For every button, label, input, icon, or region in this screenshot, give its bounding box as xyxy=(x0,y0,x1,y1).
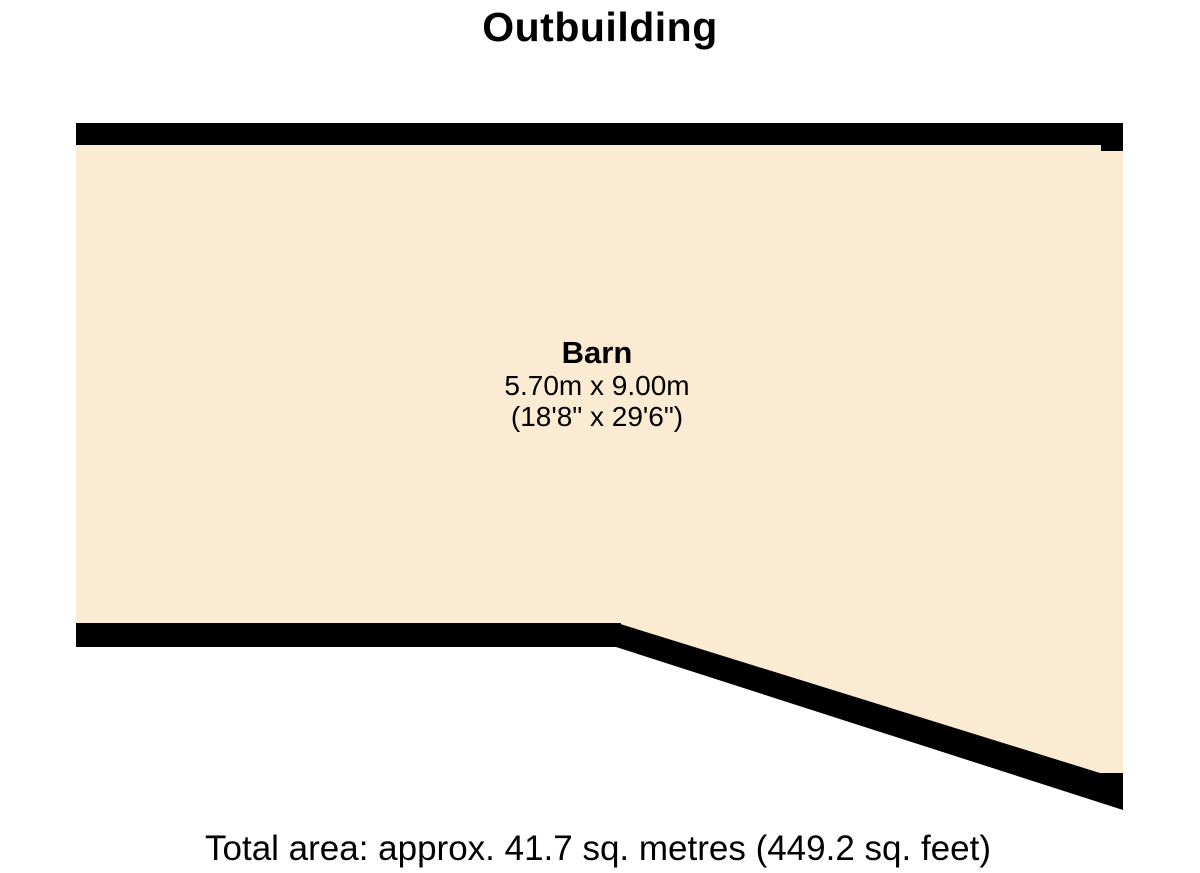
top-wall xyxy=(76,123,1123,145)
room-name: Barn xyxy=(0,336,1194,370)
floorplan-drawing xyxy=(0,0,1200,873)
room-dimensions-metric: 5.70m x 9.00m xyxy=(0,370,1194,401)
total-area-text: Total area: approx. 41.7 sq. metres (449… xyxy=(0,829,1196,869)
room-dimensions-imperial: (18'8" x 29'6") xyxy=(0,401,1194,432)
floor-area xyxy=(76,145,1123,773)
right-wall-stub-top xyxy=(1101,145,1123,151)
floorplan-canvas: Outbuilding Barn 5.70m x 9.00m (18'8" x … xyxy=(0,0,1200,873)
room-label: Barn 5.70m x 9.00m (18'8" x 29'6") xyxy=(0,336,1194,432)
bottom-wall xyxy=(76,623,621,647)
